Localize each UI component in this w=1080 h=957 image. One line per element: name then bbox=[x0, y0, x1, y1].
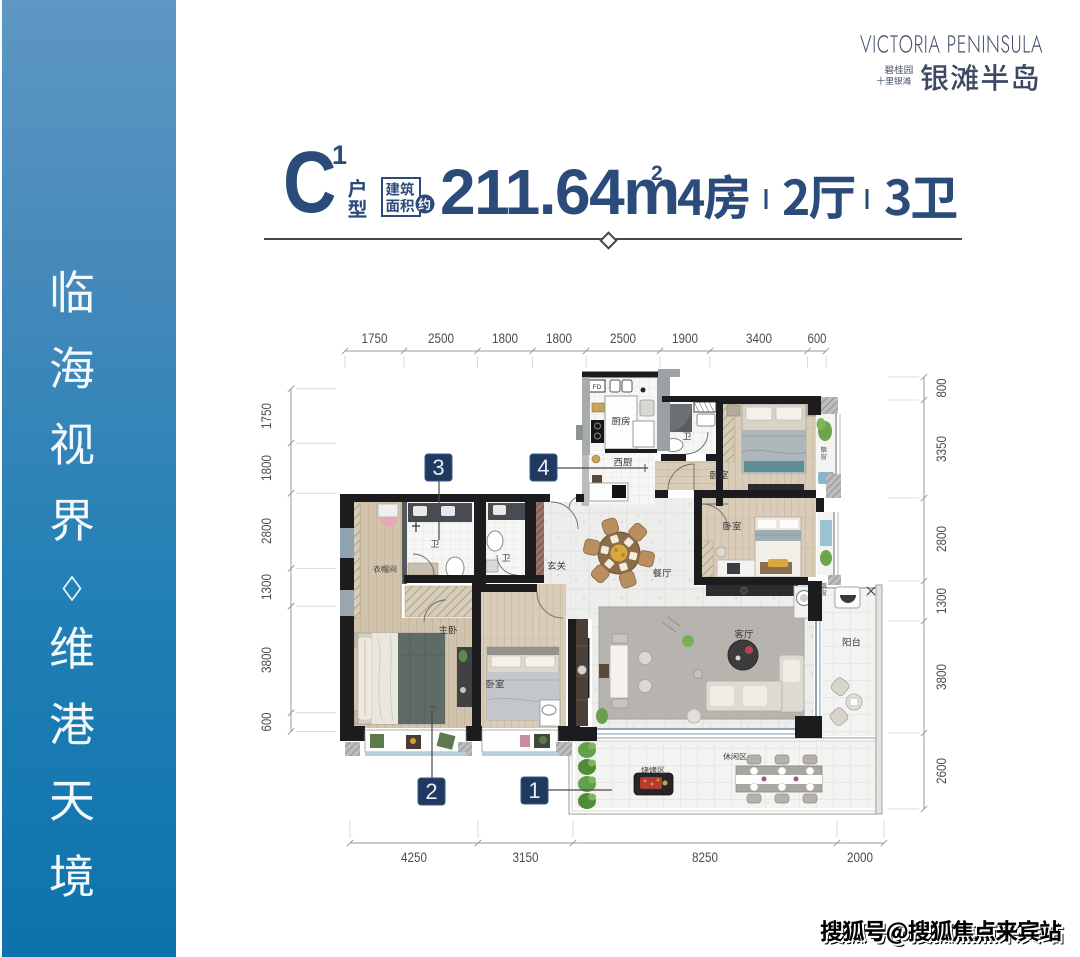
svg-text:3800: 3800 bbox=[259, 647, 274, 673]
svg-text:3150: 3150 bbox=[513, 850, 539, 865]
svg-text:2800: 2800 bbox=[259, 518, 274, 544]
svg-text:2600: 2600 bbox=[934, 758, 949, 784]
svg-text:1900: 1900 bbox=[672, 331, 698, 346]
svg-text:2: 2 bbox=[425, 779, 437, 804]
svg-text:1750: 1750 bbox=[259, 403, 274, 429]
svg-text:3400: 3400 bbox=[746, 331, 772, 346]
svg-text:1750: 1750 bbox=[362, 331, 388, 346]
svg-text:600: 600 bbox=[259, 713, 274, 732]
svg-text:800: 800 bbox=[934, 379, 949, 398]
svg-text:2500: 2500 bbox=[610, 331, 636, 346]
svg-text:2500: 2500 bbox=[428, 331, 454, 346]
svg-text:1: 1 bbox=[528, 778, 540, 803]
svg-text:FD: FD bbox=[593, 384, 602, 391]
svg-text:4250: 4250 bbox=[401, 850, 427, 865]
svg-text:2000: 2000 bbox=[847, 850, 873, 865]
svg-text:2800: 2800 bbox=[934, 526, 949, 552]
svg-text:1300: 1300 bbox=[934, 588, 949, 614]
svg-text:8250: 8250 bbox=[692, 850, 718, 865]
svg-text:3800: 3800 bbox=[934, 664, 949, 690]
svg-text:3350: 3350 bbox=[934, 436, 949, 462]
svg-text:3: 3 bbox=[432, 455, 444, 480]
svg-text:1800: 1800 bbox=[546, 331, 572, 346]
svg-text:1300: 1300 bbox=[259, 574, 274, 600]
svg-text:1800: 1800 bbox=[492, 331, 518, 346]
svg-text:600: 600 bbox=[808, 331, 827, 346]
svg-text:4: 4 bbox=[537, 455, 549, 480]
svg-text:1800: 1800 bbox=[259, 455, 274, 481]
